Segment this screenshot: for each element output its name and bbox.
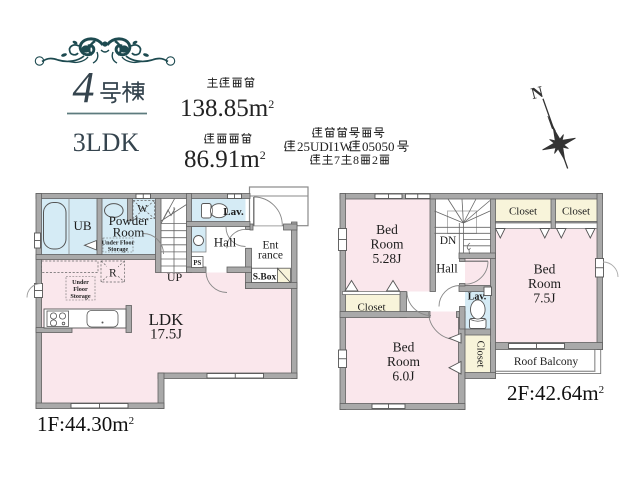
svg-text:Storage: Storage: [108, 246, 129, 253]
svg-text:Room: Room: [387, 354, 421, 369]
svg-text:Lav.: Lav.: [223, 206, 244, 218]
svg-text:138.85m2: 138.85m2: [180, 95, 274, 122]
svg-text:DN: DN: [440, 235, 457, 247]
svg-text:Bed: Bed: [534, 262, 556, 277]
svg-text:UP: UP: [167, 270, 183, 284]
svg-text:3LDK: 3LDK: [73, 128, 140, 157]
svg-text:S.Box: S.Box: [253, 273, 277, 283]
svg-text:Room: Room: [528, 276, 562, 291]
svg-text:4: 4: [73, 63, 95, 112]
svg-text:25UDI1W: 25UDI1W: [297, 139, 353, 154]
svg-text:Hall: Hall: [214, 235, 237, 250]
svg-text:6.0J: 6.0J: [392, 369, 414, 384]
svg-text:Hall: Hall: [436, 262, 458, 276]
svg-text:2: 2: [372, 153, 378, 167]
svg-text:Closet: Closet: [475, 341, 486, 368]
svg-text:PS: PS: [193, 260, 201, 267]
svg-text:Room: Room: [113, 225, 145, 240]
svg-text:Floor: Floor: [73, 286, 88, 293]
svg-text:17.5J: 17.5J: [150, 327, 182, 343]
svg-text:5.28J: 5.28J: [373, 251, 402, 266]
svg-text:Storage: Storage: [70, 293, 91, 300]
svg-text:rance: rance: [258, 250, 283, 262]
svg-text:7: 7: [334, 153, 340, 167]
svg-text:2F:42.64m2: 2F:42.64m2: [507, 381, 604, 405]
svg-text:Closet: Closet: [509, 206, 537, 218]
svg-text:86.91m2: 86.91m2: [184, 146, 266, 173]
svg-text:05050: 05050: [362, 139, 395, 154]
svg-text:8: 8: [353, 153, 359, 167]
svg-text:R: R: [109, 268, 117, 280]
svg-text:Bed: Bed: [376, 222, 398, 237]
svg-text:7.5J: 7.5J: [533, 291, 555, 306]
svg-text:Closet: Closet: [562, 206, 590, 218]
svg-text:Closet: Closet: [357, 302, 385, 314]
svg-text:Bed: Bed: [393, 340, 415, 355]
svg-text:Room: Room: [370, 237, 404, 252]
svg-text:Under: Under: [72, 279, 89, 286]
svg-text:W: W: [137, 203, 148, 215]
svg-text:1F:44.30m2: 1F:44.30m2: [37, 412, 134, 436]
svg-text:UB: UB: [73, 218, 91, 233]
svg-text:Lav.: Lav.: [468, 292, 487, 303]
svg-text:Roof Balcony: Roof Balcony: [514, 356, 578, 368]
